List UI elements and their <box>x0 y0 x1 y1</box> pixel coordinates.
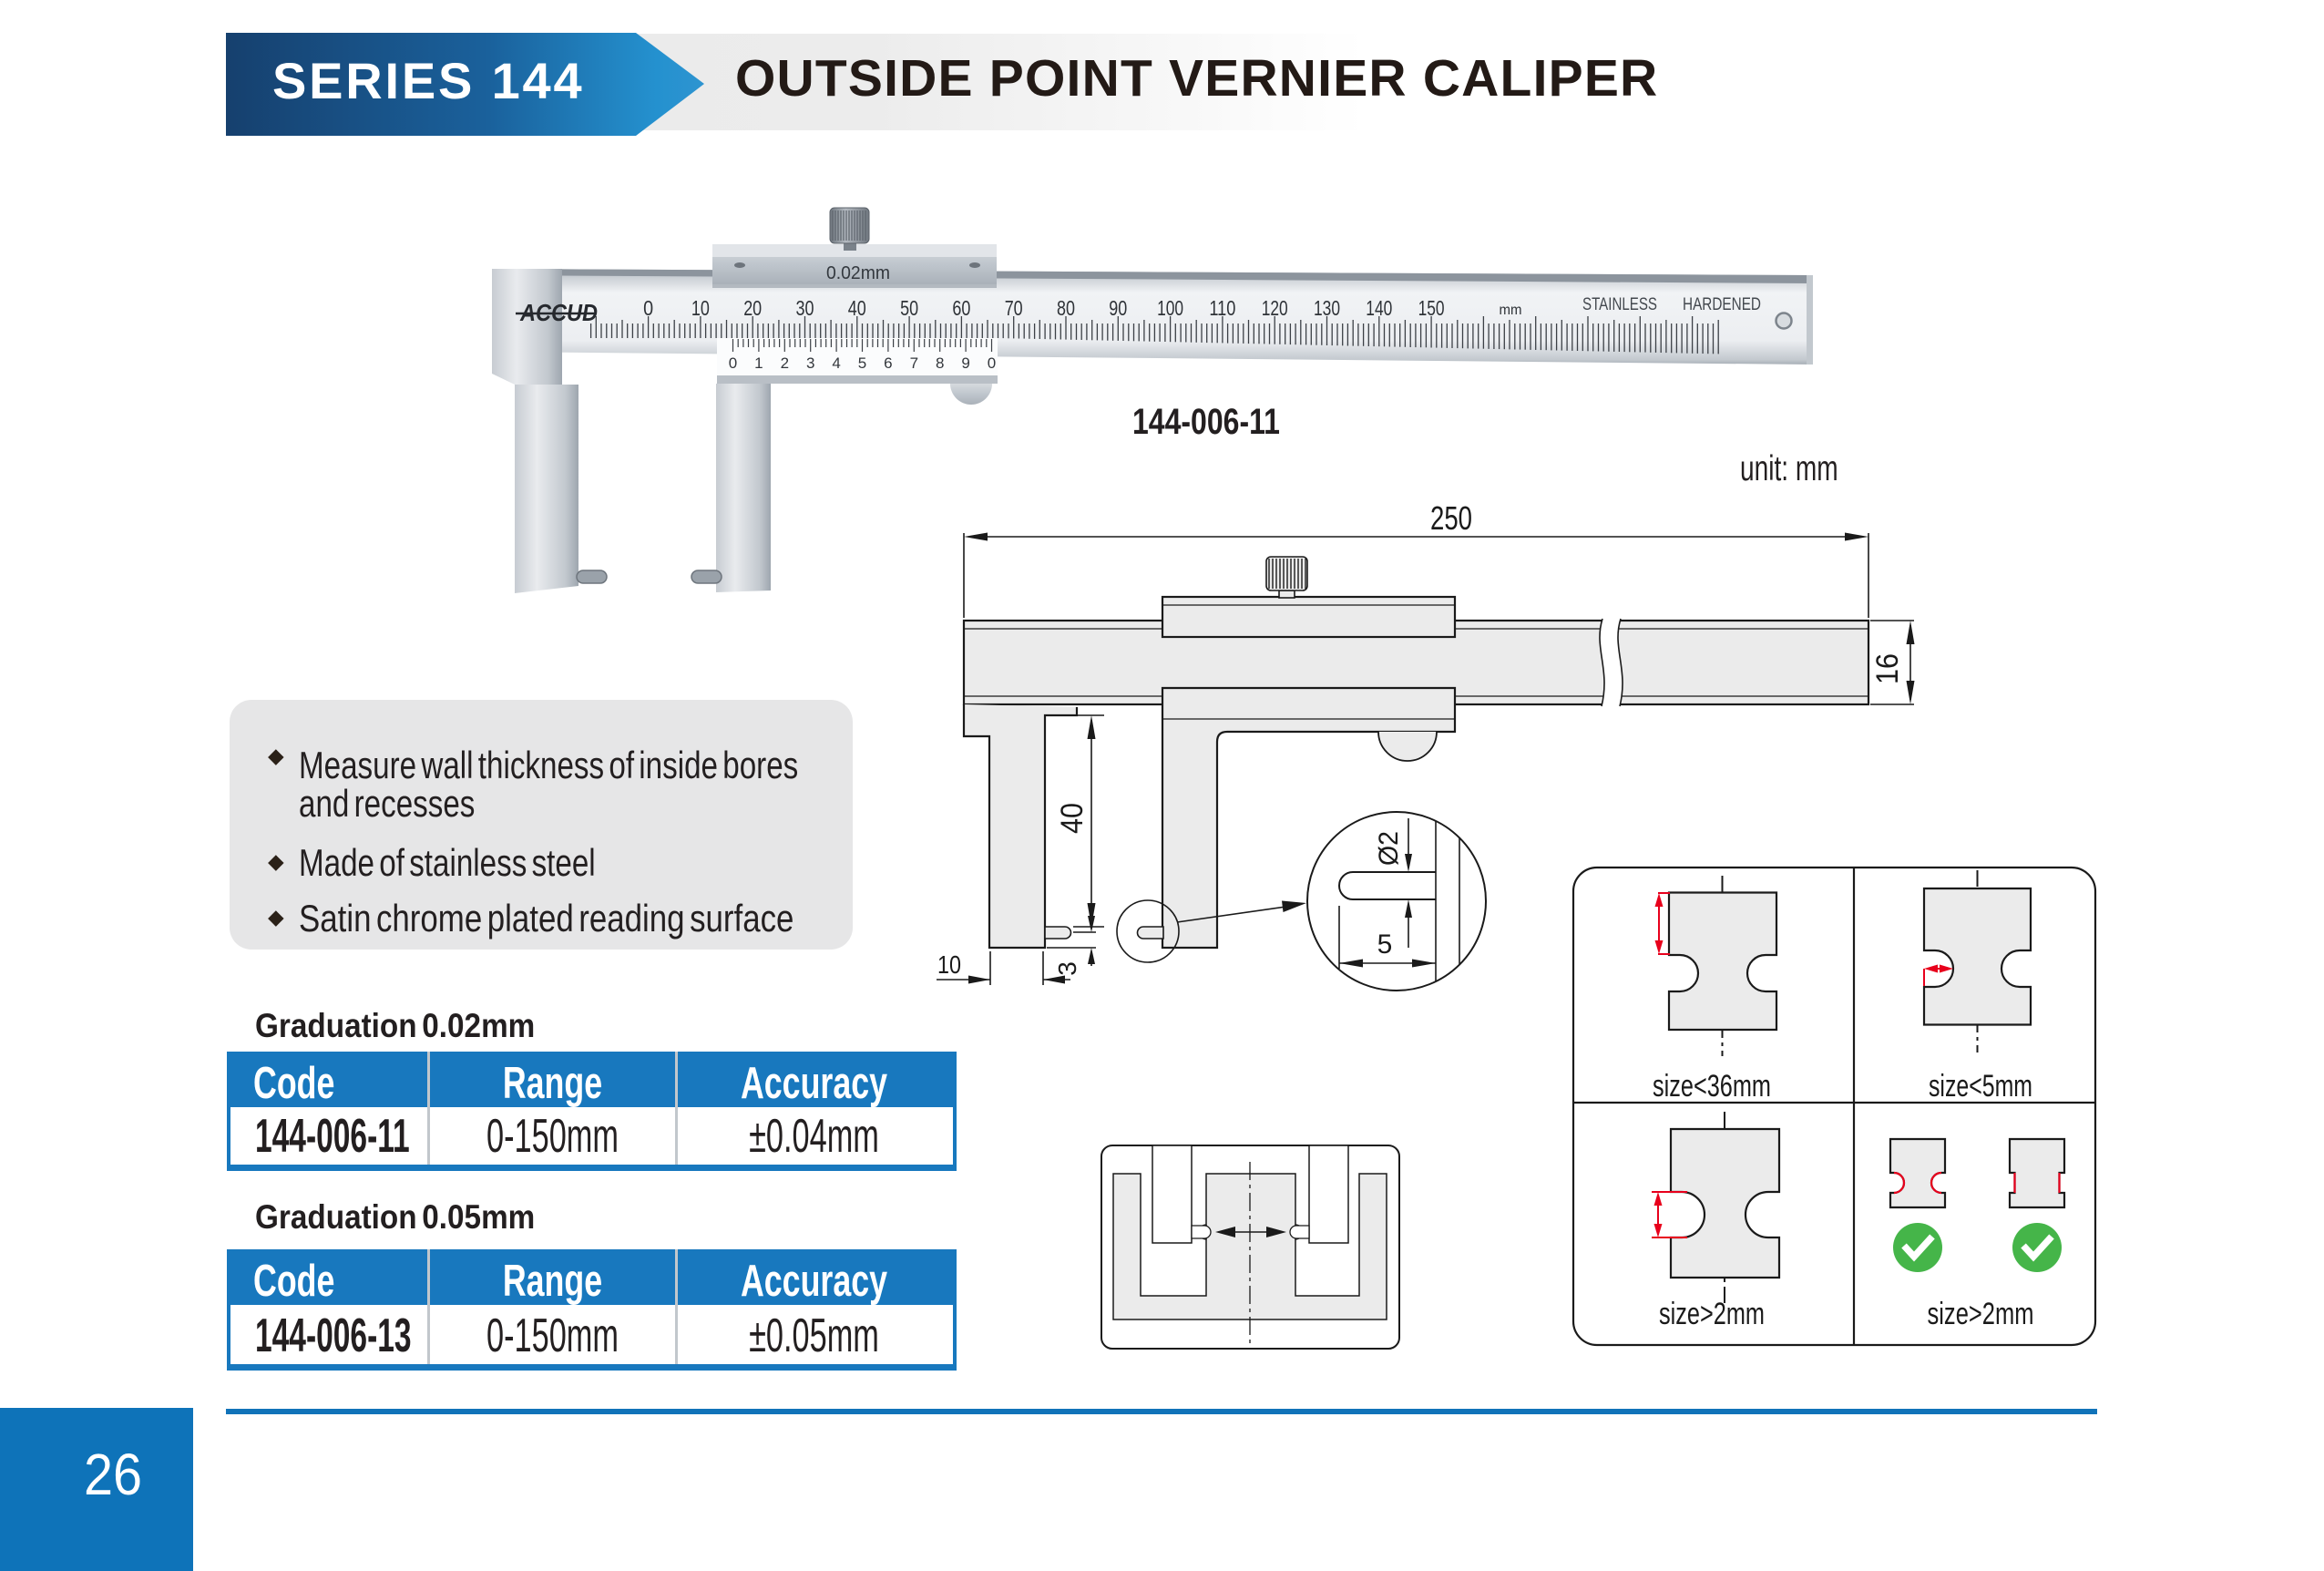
svg-text:120: 120 <box>1262 296 1288 320</box>
svg-text:mm: mm <box>1500 303 1522 318</box>
svg-text:30: 30 <box>796 296 814 320</box>
svg-text:40: 40 <box>1055 803 1090 834</box>
svg-text:size<5mm: size<5mm <box>1929 1069 2032 1104</box>
svg-text:110: 110 <box>1209 296 1235 320</box>
svg-text:HARDENED: HARDENED <box>1683 295 1761 314</box>
svg-text:0: 0 <box>988 354 996 372</box>
svg-text:0.02mm: 0.02mm <box>826 263 890 283</box>
svg-text:3: 3 <box>1053 961 1081 976</box>
svg-text:5: 5 <box>858 354 866 372</box>
svg-text:5: 5 <box>1377 929 1393 960</box>
svg-text:100: 100 <box>1157 296 1183 320</box>
svg-text:9: 9 <box>961 354 969 372</box>
svg-text:10: 10 <box>691 296 710 320</box>
svg-text:40: 40 <box>848 296 866 320</box>
svg-text:20: 20 <box>743 296 762 320</box>
svg-text:130: 130 <box>1314 296 1340 320</box>
svg-text:2: 2 <box>781 354 789 372</box>
svg-text:Ø2: Ø2 <box>1374 831 1404 866</box>
svg-text:16: 16 <box>1870 653 1905 684</box>
svg-text:90: 90 <box>1109 296 1127 320</box>
svg-text:80: 80 <box>1057 296 1075 320</box>
svg-text:size>2mm: size>2mm <box>1928 1297 2034 1331</box>
svg-text:140: 140 <box>1366 296 1392 320</box>
svg-text:60: 60 <box>952 296 970 320</box>
svg-text:6: 6 <box>884 354 892 372</box>
svg-text:1: 1 <box>754 354 763 372</box>
svg-text:250: 250 <box>1430 499 1472 537</box>
svg-text:4: 4 <box>832 354 840 372</box>
svg-text:0: 0 <box>643 296 653 320</box>
svg-text:70: 70 <box>1005 296 1023 320</box>
svg-text:10: 10 <box>937 950 961 979</box>
svg-text:size<36mm: size<36mm <box>1653 1069 1771 1104</box>
svg-text:8: 8 <box>936 354 944 372</box>
svg-text:3: 3 <box>806 354 814 372</box>
svg-text:0: 0 <box>729 354 737 372</box>
svg-text:50: 50 <box>900 296 918 320</box>
svg-text:7: 7 <box>910 354 918 372</box>
svg-text:STAINLESS: STAINLESS <box>1582 295 1657 314</box>
svg-text:150: 150 <box>1418 296 1445 320</box>
svg-text:size>2mm: size>2mm <box>1659 1297 1765 1331</box>
